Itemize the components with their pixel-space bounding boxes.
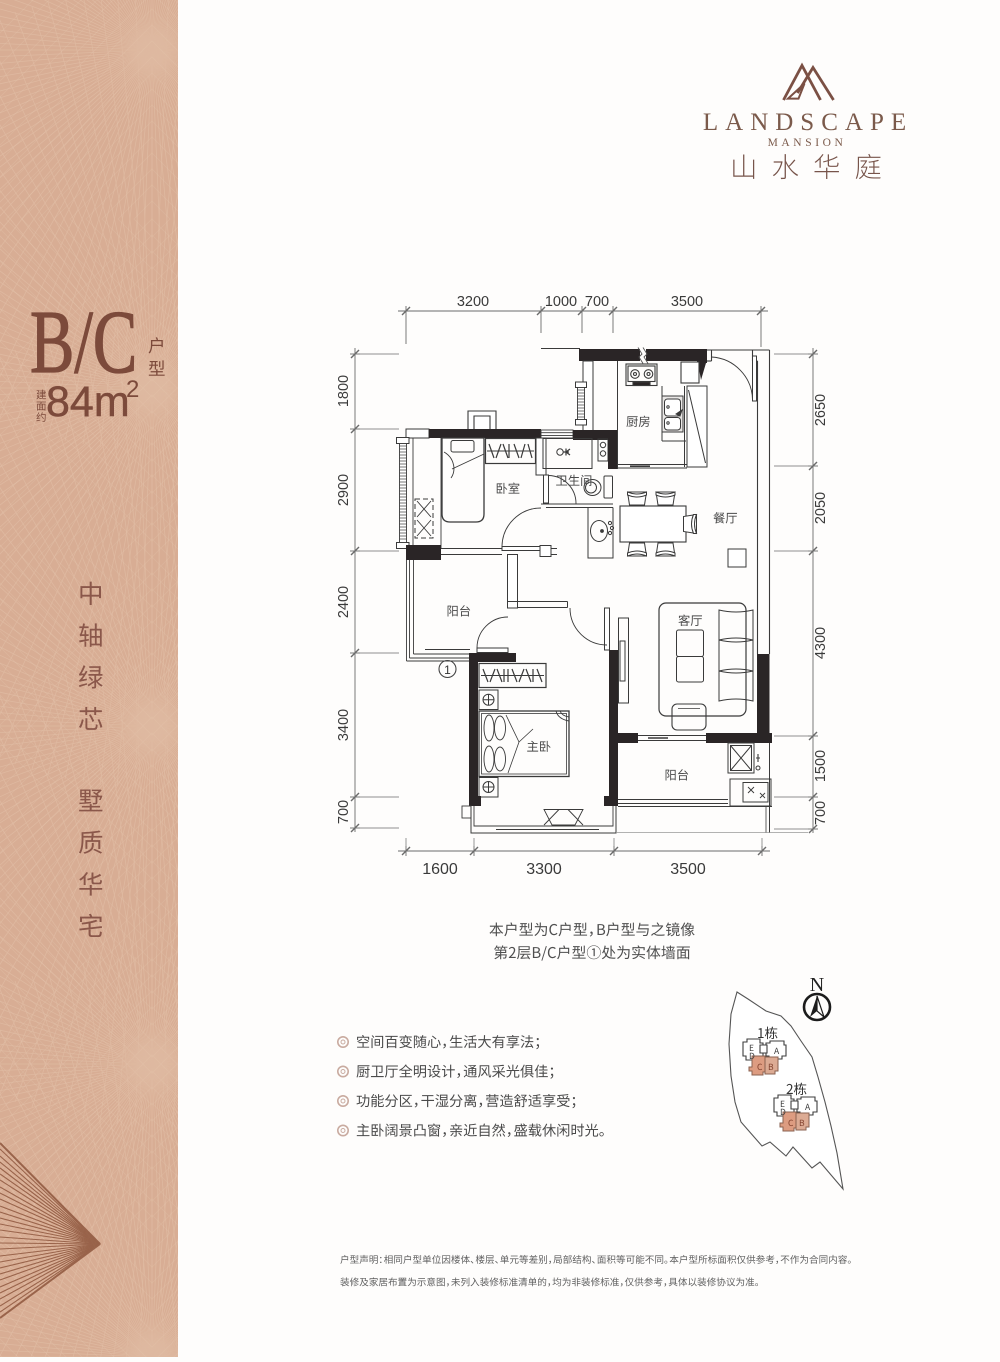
svg-text:3300: 3300: [526, 861, 562, 878]
svg-text:1800: 1800: [336, 375, 352, 407]
svg-text:MANSION: MANSION: [768, 137, 847, 149]
svg-text:84m: 84m: [46, 378, 130, 426]
svg-text:700: 700: [336, 800, 352, 824]
svg-text:LANDSCAPE: LANDSCAPE: [703, 109, 913, 136]
svg-text:3200: 3200: [457, 294, 489, 310]
svg-text:1600: 1600: [422, 861, 458, 878]
svg-text:700: 700: [585, 294, 609, 310]
svg-text:2400: 2400: [336, 586, 352, 618]
svg-text:1000: 1000: [545, 294, 577, 310]
svg-text:2650: 2650: [813, 394, 829, 426]
svg-text:3400: 3400: [336, 709, 352, 741]
svg-text:N: N: [810, 974, 824, 996]
svg-text:2900: 2900: [336, 474, 352, 506]
svg-text:3500: 3500: [670, 861, 706, 878]
svg-text:1500: 1500: [813, 750, 829, 782]
svg-text:3500: 3500: [671, 294, 703, 310]
svg-text:700: 700: [813, 801, 829, 825]
svg-text:2: 2: [126, 376, 139, 403]
svg-text:4300: 4300: [813, 627, 829, 659]
svg-text:2050: 2050: [813, 492, 829, 524]
svg-text:1: 1: [444, 663, 451, 677]
